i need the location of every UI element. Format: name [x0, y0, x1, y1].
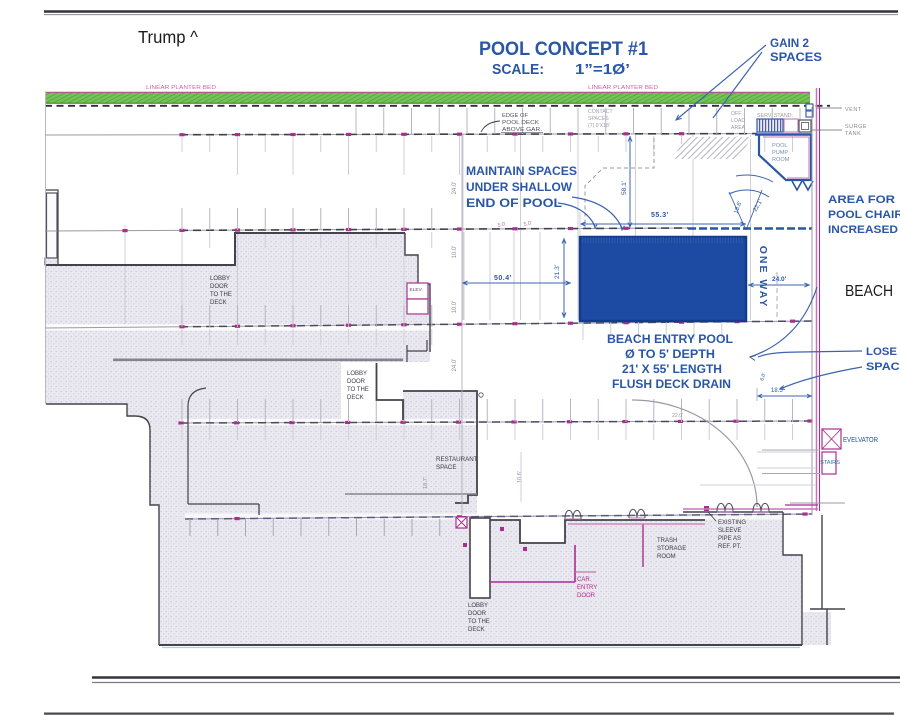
svg-text:LOSE: LOSE	[866, 346, 897, 358]
svg-text:GAIN 2: GAIN 2	[770, 38, 809, 50]
svg-text:ENTRY: ENTRY	[577, 585, 597, 591]
svg-text:UNDER SHALLOW: UNDER SHALLOW	[466, 180, 573, 194]
svg-text:LOAD: LOAD	[731, 118, 745, 124]
svg-text:PIPE AS: PIPE AS	[718, 536, 741, 542]
svg-text:10.0': 10.0'	[452, 301, 458, 314]
svg-text:AREA FOR: AREA FOR	[828, 194, 895, 206]
svg-text:SPACE: SPACE	[866, 361, 900, 373]
svg-text:BEACH ENTRY POOL: BEACH ENTRY POOL	[607, 332, 733, 346]
svg-text:DOOR: DOOR	[210, 284, 229, 290]
svg-text:ROOM: ROOM	[772, 157, 790, 163]
svg-text:LOBBY: LOBBY	[210, 276, 230, 282]
svg-text:PUMP: PUMP	[772, 150, 788, 156]
svg-text:POOL CHAIR: POOL CHAIR	[828, 209, 900, 221]
svg-text:INCREASED: INCREASED	[828, 224, 898, 236]
svg-text:TRASH: TRASH	[657, 538, 677, 544]
svg-text:24.0': 24.0'	[452, 359, 458, 372]
svg-text:10.0': 10.0'	[452, 246, 458, 259]
svg-text:TO THE: TO THE	[468, 619, 490, 625]
svg-text:DOOR: DOOR	[468, 611, 487, 617]
svg-text:SURGE: SURGE	[845, 124, 867, 130]
svg-text:DOOR: DOOR	[577, 593, 596, 599]
svg-text:ELEV.: ELEV.	[410, 287, 423, 293]
svg-text:POOL CONCEPT #1: POOL CONCEPT #1	[479, 39, 648, 60]
svg-text:50.4': 50.4'	[494, 275, 512, 282]
svg-text:18.7': 18.7'	[423, 477, 429, 489]
svg-text:BEACH: BEACH	[845, 283, 893, 300]
svg-text:EXISTING: EXISTING	[718, 520, 746, 526]
svg-text:TO THE: TO THE	[210, 292, 232, 298]
svg-text:LOBBY: LOBBY	[468, 603, 488, 609]
svg-text:ABOVE GAR.: ABOVE GAR.	[502, 127, 542, 133]
svg-text:CONTACT: CONTACT	[588, 109, 614, 115]
svg-text:55.3': 55.3'	[651, 212, 669, 219]
svg-text:TANK: TANK	[845, 131, 861, 137]
svg-text:Trump ^: Trump ^	[138, 27, 199, 47]
svg-text:ROOM: ROOM	[657, 554, 676, 560]
svg-text:VENT: VENT	[845, 107, 862, 113]
svg-text:24.0': 24.0'	[772, 276, 787, 283]
svg-text:1”=1Ø’: 1”=1Ø’	[575, 61, 630, 78]
svg-text:10.6': 10.6'	[517, 471, 523, 483]
svg-text:(7) 9'X18': (7) 9'X18'	[588, 123, 610, 129]
svg-text:24.0': 24.0'	[452, 182, 458, 195]
svg-text:18.5': 18.5'	[771, 388, 784, 394]
svg-text:DOOR: DOOR	[347, 379, 366, 385]
svg-text:POOL DECK: POOL DECK	[502, 120, 539, 126]
svg-text:END OF POOL: END OF POOL	[466, 196, 562, 210]
svg-text:TO THE: TO THE	[347, 387, 369, 393]
svg-text:58.1': 58.1'	[621, 181, 628, 195]
svg-text:LINEAR PLANTER BED: LINEAR PLANTER BED	[146, 85, 216, 91]
svg-text:MAINTAIN SPACES: MAINTAIN SPACES	[466, 164, 577, 178]
svg-text:22.0': 22.0'	[672, 413, 683, 419]
svg-text:Ø TO 5' DEPTH: Ø TO 5' DEPTH	[625, 347, 715, 361]
svg-text:EVELVATOR: EVELVATOR	[843, 437, 878, 444]
svg-text:SPACES: SPACES	[588, 116, 609, 122]
svg-text:RESTAURANT: RESTAURANT	[436, 456, 478, 463]
svg-text:OFF: OFF	[731, 111, 741, 117]
svg-text:ONE WAY: ONE WAY	[757, 246, 769, 309]
svg-text:AREA: AREA	[731, 125, 746, 131]
svg-text:CAR.: CAR.	[577, 577, 592, 583]
svg-text:POOL: POOL	[772, 143, 788, 149]
svg-text:SCALE:: SCALE:	[492, 61, 544, 78]
svg-text:SERV. STAND.: SERV. STAND.	[757, 113, 793, 119]
svg-text:SPACES: SPACES	[770, 52, 822, 64]
svg-text:21.3': 21.3'	[554, 265, 561, 279]
svg-text:LOBBY: LOBBY	[347, 371, 367, 377]
svg-text:REF. PT.: REF. PT.	[718, 544, 742, 550]
svg-text:DECK: DECK	[468, 627, 485, 633]
svg-text:LINEAR PLANTER BED: LINEAR PLANTER BED	[588, 85, 658, 91]
svg-text:EDGE OF: EDGE OF	[502, 113, 528, 119]
svg-text:STAIRS: STAIRS	[820, 460, 841, 466]
svg-text:SLEEVE: SLEEVE	[718, 528, 741, 534]
svg-text:FLUSH DECK DRAIN: FLUSH DECK DRAIN	[612, 377, 731, 391]
svg-text:STORAGE: STORAGE	[657, 546, 686, 552]
svg-text:SPACE: SPACE	[436, 464, 457, 471]
svg-text:DECK: DECK	[210, 300, 227, 306]
svg-text:DECK: DECK	[347, 395, 364, 401]
svg-text:21' X 55' LENGTH: 21' X 55' LENGTH	[622, 362, 722, 376]
